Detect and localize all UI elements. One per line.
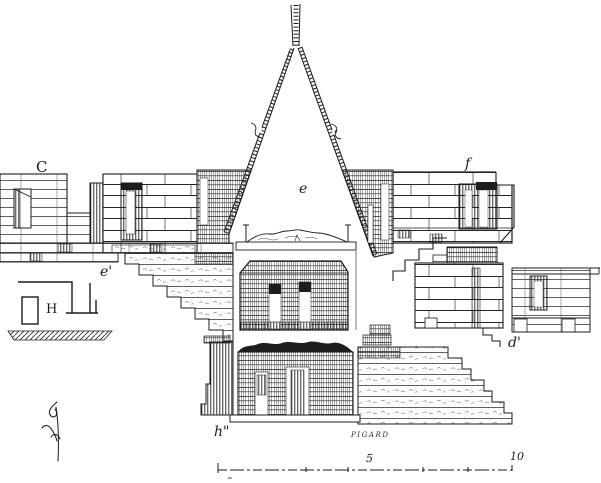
wall-d-prime [512, 268, 600, 332]
debris-mound [247, 230, 347, 242]
label-h-upper: H [46, 302, 57, 317]
left-inner-wall [197, 170, 251, 243]
engravers-flourish [42, 402, 60, 461]
scale-label-5: 5 [366, 452, 373, 465]
label-c: C [36, 158, 47, 176]
right-wall-f [393, 170, 514, 243]
stair-right-lower [358, 347, 512, 424]
sarcophagus-block [233, 251, 356, 330]
engraver-signature: PIGARD [350, 431, 390, 439]
detail-h-sketch [18, 282, 98, 324]
label-h-double-prime: h" [214, 424, 229, 440]
stair-left [112, 245, 233, 341]
label-e-prime: e' [100, 264, 112, 280]
scale-bar [218, 463, 512, 478]
lower-chamber-block [201, 336, 360, 422]
section-engraving: C f e e' H d' h" PIGARD 5 10 [0, 0, 601, 483]
label-d-prime: d' [508, 335, 521, 351]
ground-hatch [8, 331, 112, 340]
label-e: e [299, 181, 307, 197]
label-f: f [464, 156, 473, 172]
engraving-page: C f e e' H d' h" PIGARD 5 10 [0, 0, 601, 483]
scale-label-10: 10 [510, 450, 524, 463]
apex-shaft [291, 4, 300, 46]
centre-right-block [363, 247, 503, 347]
